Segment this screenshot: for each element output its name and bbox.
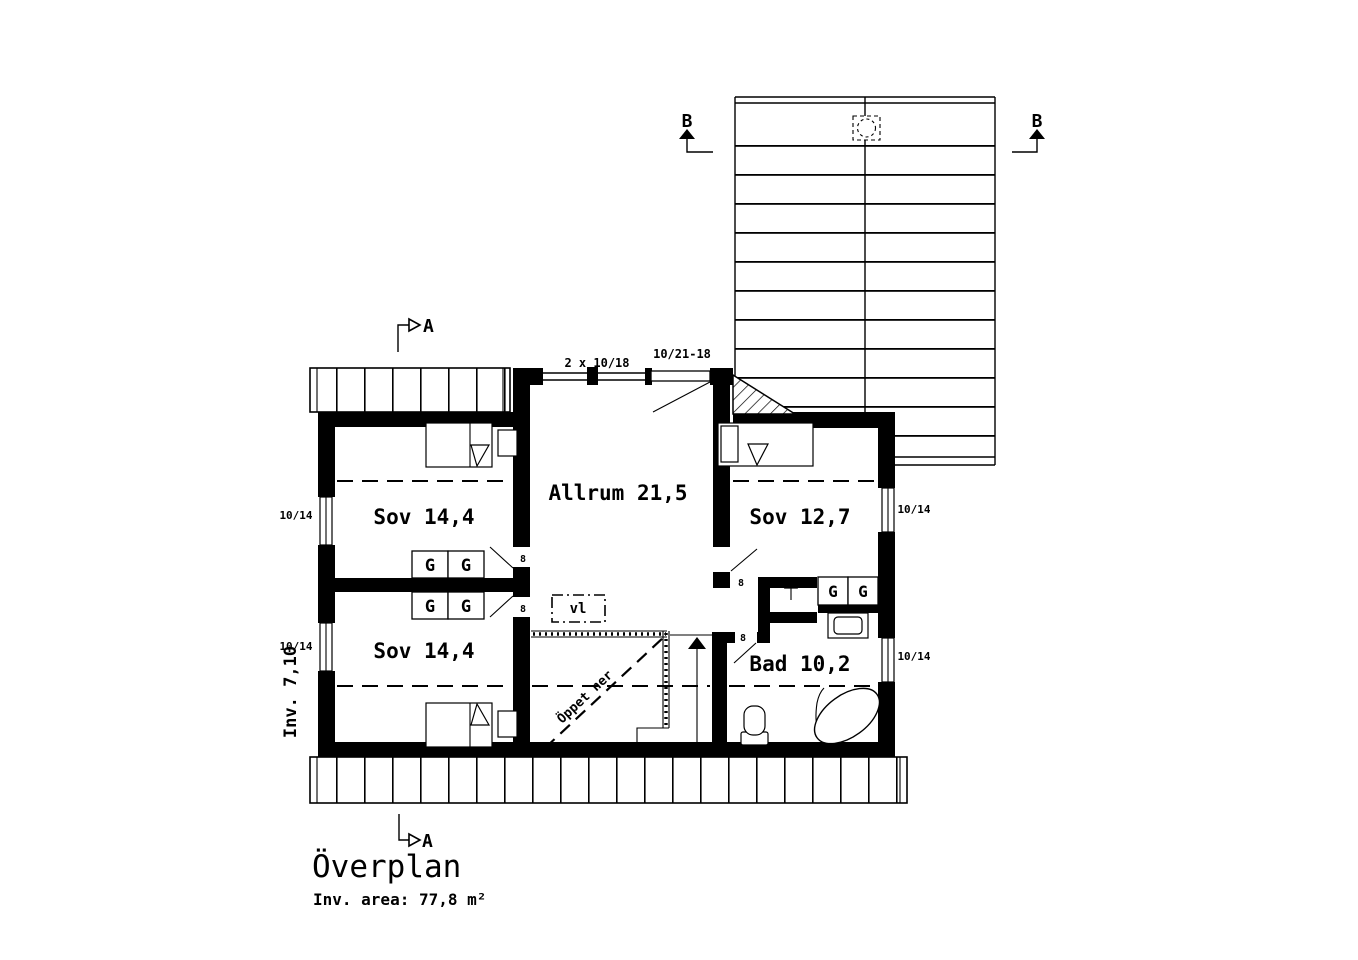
- room-label-bad: Bad 10,2: [749, 652, 850, 676]
- closet-label-3: G: [425, 597, 435, 617]
- closet-label-2: G: [461, 556, 471, 576]
- washbasin-icon: [828, 613, 868, 638]
- open-below-label: Öppet ner: [554, 667, 617, 727]
- drawing-title-block: Överplan Inv. area: 77,8 m²: [312, 848, 486, 909]
- roof-vent-icon: [853, 116, 880, 140]
- section-marker-b-right: B: [1012, 111, 1045, 152]
- closet-block-right: [818, 577, 878, 605]
- window-label-left-top: 10/14: [279, 509, 312, 522]
- window-left-top-symbol: [320, 497, 332, 545]
- bed-top-left: [426, 423, 517, 467]
- door-width-label-2: 8: [520, 604, 526, 615]
- section-marker-b-left: B: [679, 111, 713, 152]
- closet-label-6: G: [858, 582, 868, 601]
- door-width-label-1: 8: [520, 554, 526, 565]
- room-label-allrum: Allrum 21,5: [548, 481, 687, 505]
- door-width-label-4: 8: [740, 633, 746, 644]
- vl-label: vl: [570, 601, 587, 617]
- room-label-sov-top-left: Sov 14,4: [373, 505, 474, 529]
- drawing-area-label: Inv. area: 77,8 m²: [313, 890, 486, 909]
- bed-bottom-left: [426, 703, 517, 747]
- floor-plan-canvas: A A B B Sov 14,4 Allrum 21,5 Sov 12,7 So…: [0, 0, 1358, 960]
- stair-direction-arrow-icon: [686, 637, 706, 756]
- window-right-bottom-symbol: [882, 638, 894, 682]
- lower-eave-strip: [310, 757, 907, 803]
- window-label-top: 2 x 10/18: [564, 356, 629, 370]
- section-a-top-label: A: [423, 316, 434, 337]
- closet-label-4: G: [461, 597, 471, 617]
- window-right-top-symbol: [882, 488, 894, 532]
- window-label-right-top: 10/14: [897, 503, 930, 516]
- section-b-left-label: B: [682, 111, 693, 132]
- toilet-icon: [741, 706, 768, 745]
- section-marker-a-bottom: A: [399, 814, 433, 852]
- stair-opening: [531, 631, 712, 757]
- closet-label-5: G: [828, 582, 838, 601]
- room-label-sov-bottom-left: Sov 14,4: [373, 639, 474, 663]
- drawing-title: Överplan: [312, 848, 461, 885]
- balcony-door-label: 10/21-18: [653, 347, 711, 361]
- window-label-right-bottom: 10/14: [897, 650, 930, 663]
- window-left-bottom-symbol: [320, 623, 332, 671]
- interior-height-label: Inv. 7,10: [281, 646, 301, 738]
- floor-plan-page: A A B B Sov 14,4 Allrum 21,5 Sov 12,7 So…: [0, 0, 1358, 960]
- upper-eave-strip: [310, 368, 510, 412]
- room-label-sov-right: Sov 12,7: [749, 505, 850, 529]
- section-b-right-label: B: [1032, 111, 1043, 132]
- section-marker-a-top: A: [398, 316, 434, 352]
- balcony-door-symbol: [651, 371, 710, 412]
- closet-label-1: G: [425, 556, 435, 576]
- bed-right: [718, 423, 813, 466]
- door-width-label-3: 8: [738, 578, 744, 589]
- interior-walls: [335, 427, 878, 742]
